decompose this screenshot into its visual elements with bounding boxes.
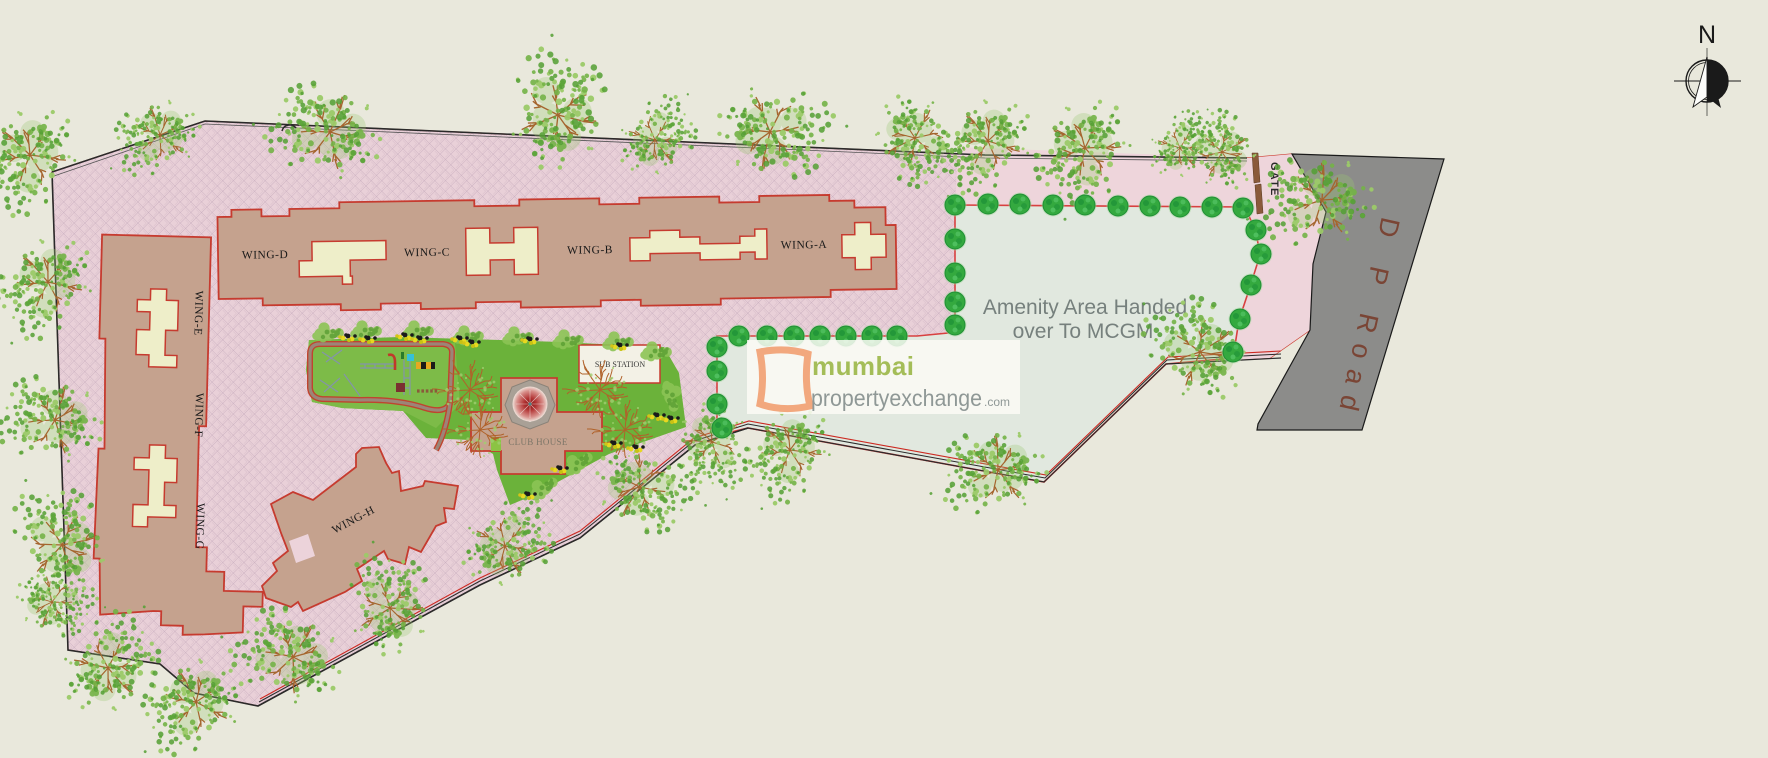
svg-text:WING-F: WING-F (192, 393, 205, 438)
svg-text:WING-D: WING-D (242, 249, 289, 262)
svg-text:WING-E: WING-E (191, 290, 204, 335)
svg-text:WING-C: WING-C (404, 247, 450, 260)
svg-text:.com: .com (984, 395, 1010, 409)
svg-text:WING-A: WING-A (781, 239, 828, 252)
svg-text:mumbai: mumbai (812, 351, 914, 381)
svg-text:propertyexchange: propertyexchange (811, 385, 982, 411)
svg-text:CLUB HOUSE: CLUB HOUSE (508, 437, 567, 447)
svg-text:N: N (1698, 21, 1716, 49)
svg-text:WING-G: WING-G (193, 503, 206, 550)
svg-text:WING-B: WING-B (567, 244, 613, 257)
svg-text:over To MCGM: over To MCGM (1013, 320, 1154, 343)
